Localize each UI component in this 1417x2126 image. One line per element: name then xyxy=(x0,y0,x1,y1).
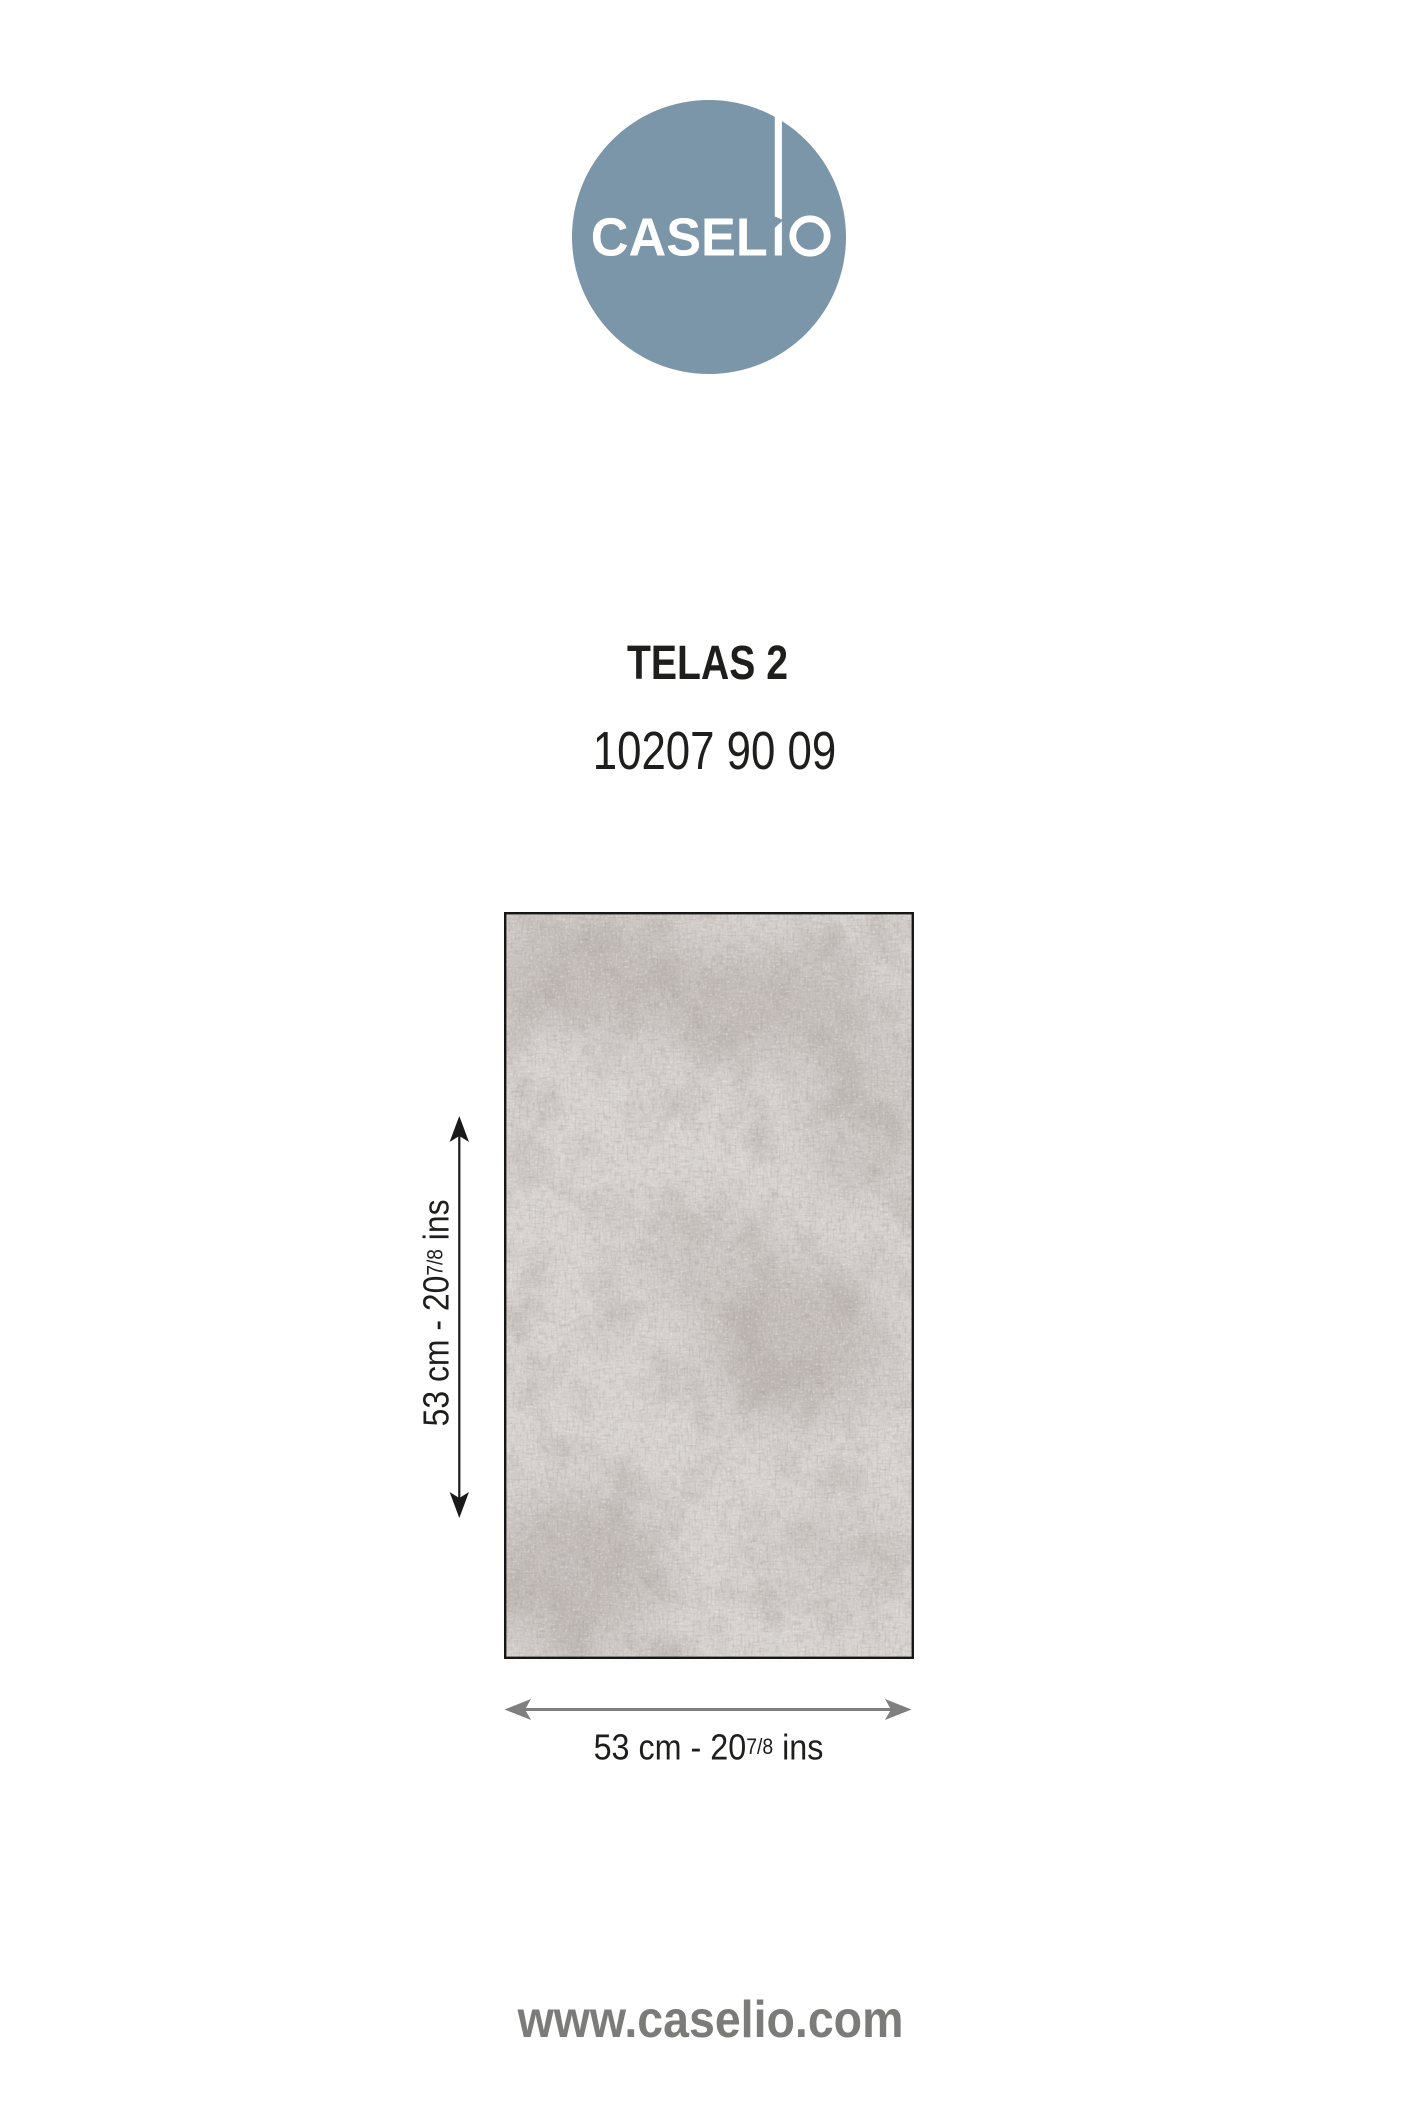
svg-text:CASEL: CASEL xyxy=(591,209,768,268)
